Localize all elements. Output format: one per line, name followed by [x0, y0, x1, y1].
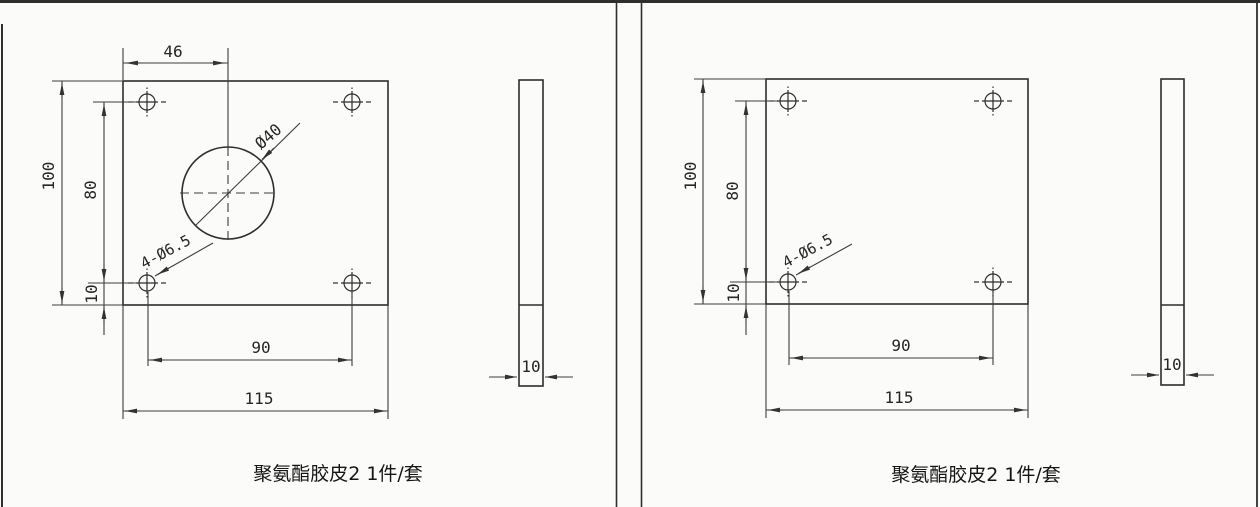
dim-90-label: 90: [891, 336, 910, 355]
sheet-borders: [0, 0, 1260, 507]
dim-10: 10: [82, 283, 104, 335]
side-view: 10: [1131, 79, 1214, 385]
dim-80-label: 80: [81, 180, 100, 199]
dim-thickness-label: 10: [1162, 355, 1181, 374]
dim-46-label: 46: [163, 42, 182, 61]
dim-10: 10: [724, 282, 746, 335]
hole-center-mark: [974, 268, 1012, 297]
hole-center-mark: [333, 88, 371, 117]
dim-115-label: 115: [885, 388, 914, 407]
side-view: 10: [489, 80, 573, 386]
side-view-outline: [1161, 79, 1184, 385]
hole-center-mark: [974, 87, 1012, 116]
dim-10-label: 10: [82, 284, 101, 303]
center-hole-dia-label: Ø40: [251, 120, 285, 153]
dim-10-label: 10: [724, 283, 743, 302]
corner-holes-label: 4-Ø6.5: [779, 230, 835, 271]
diameter-leader-line: [196, 123, 300, 225]
dim-90: 90: [148, 292, 352, 366]
dim-90: 90: [789, 291, 993, 365]
dim-90-label: 90: [251, 338, 270, 357]
dim-80: 80: [81, 102, 136, 283]
panel-caption: 聚氨酯胶皮2 1件/套: [891, 464, 1061, 486]
dim-115-label: 115: [245, 389, 274, 408]
dim-46: 46: [123, 42, 228, 150]
dim-80-label: 80: [723, 181, 742, 200]
side-view-outline: [519, 80, 543, 386]
top-border: [0, 0, 1260, 3]
right-panel: 100 80 10 4-Ø6.5: [681, 79, 1214, 486]
dim-80: 80: [723, 101, 777, 282]
panel-caption: 聚氨酯胶皮2 1件/套: [253, 463, 423, 485]
dim-100-label: 100: [39, 162, 58, 191]
left-panel: Ø40 46 100 80: [39, 42, 573, 485]
center-hole: Ø40: [180, 120, 300, 241]
corner-holes-label: 4-Ø6.5: [137, 231, 193, 272]
corner-holes-callout: 4-Ø6.5: [137, 231, 213, 276]
hole-center-mark: [333, 269, 371, 298]
dim-115: 115: [766, 304, 1028, 418]
dim-115: 115: [123, 305, 388, 419]
dim-thickness-label: 10: [521, 357, 540, 376]
corner-holes-callout: 4-Ø6.5: [779, 230, 852, 275]
dim-100-label: 100: [681, 162, 700, 191]
drawing-canvas: Ø40 46 100 80: [0, 0, 1260, 507]
drawing-sheet: Ø40 46 100 80: [0, 0, 1260, 507]
